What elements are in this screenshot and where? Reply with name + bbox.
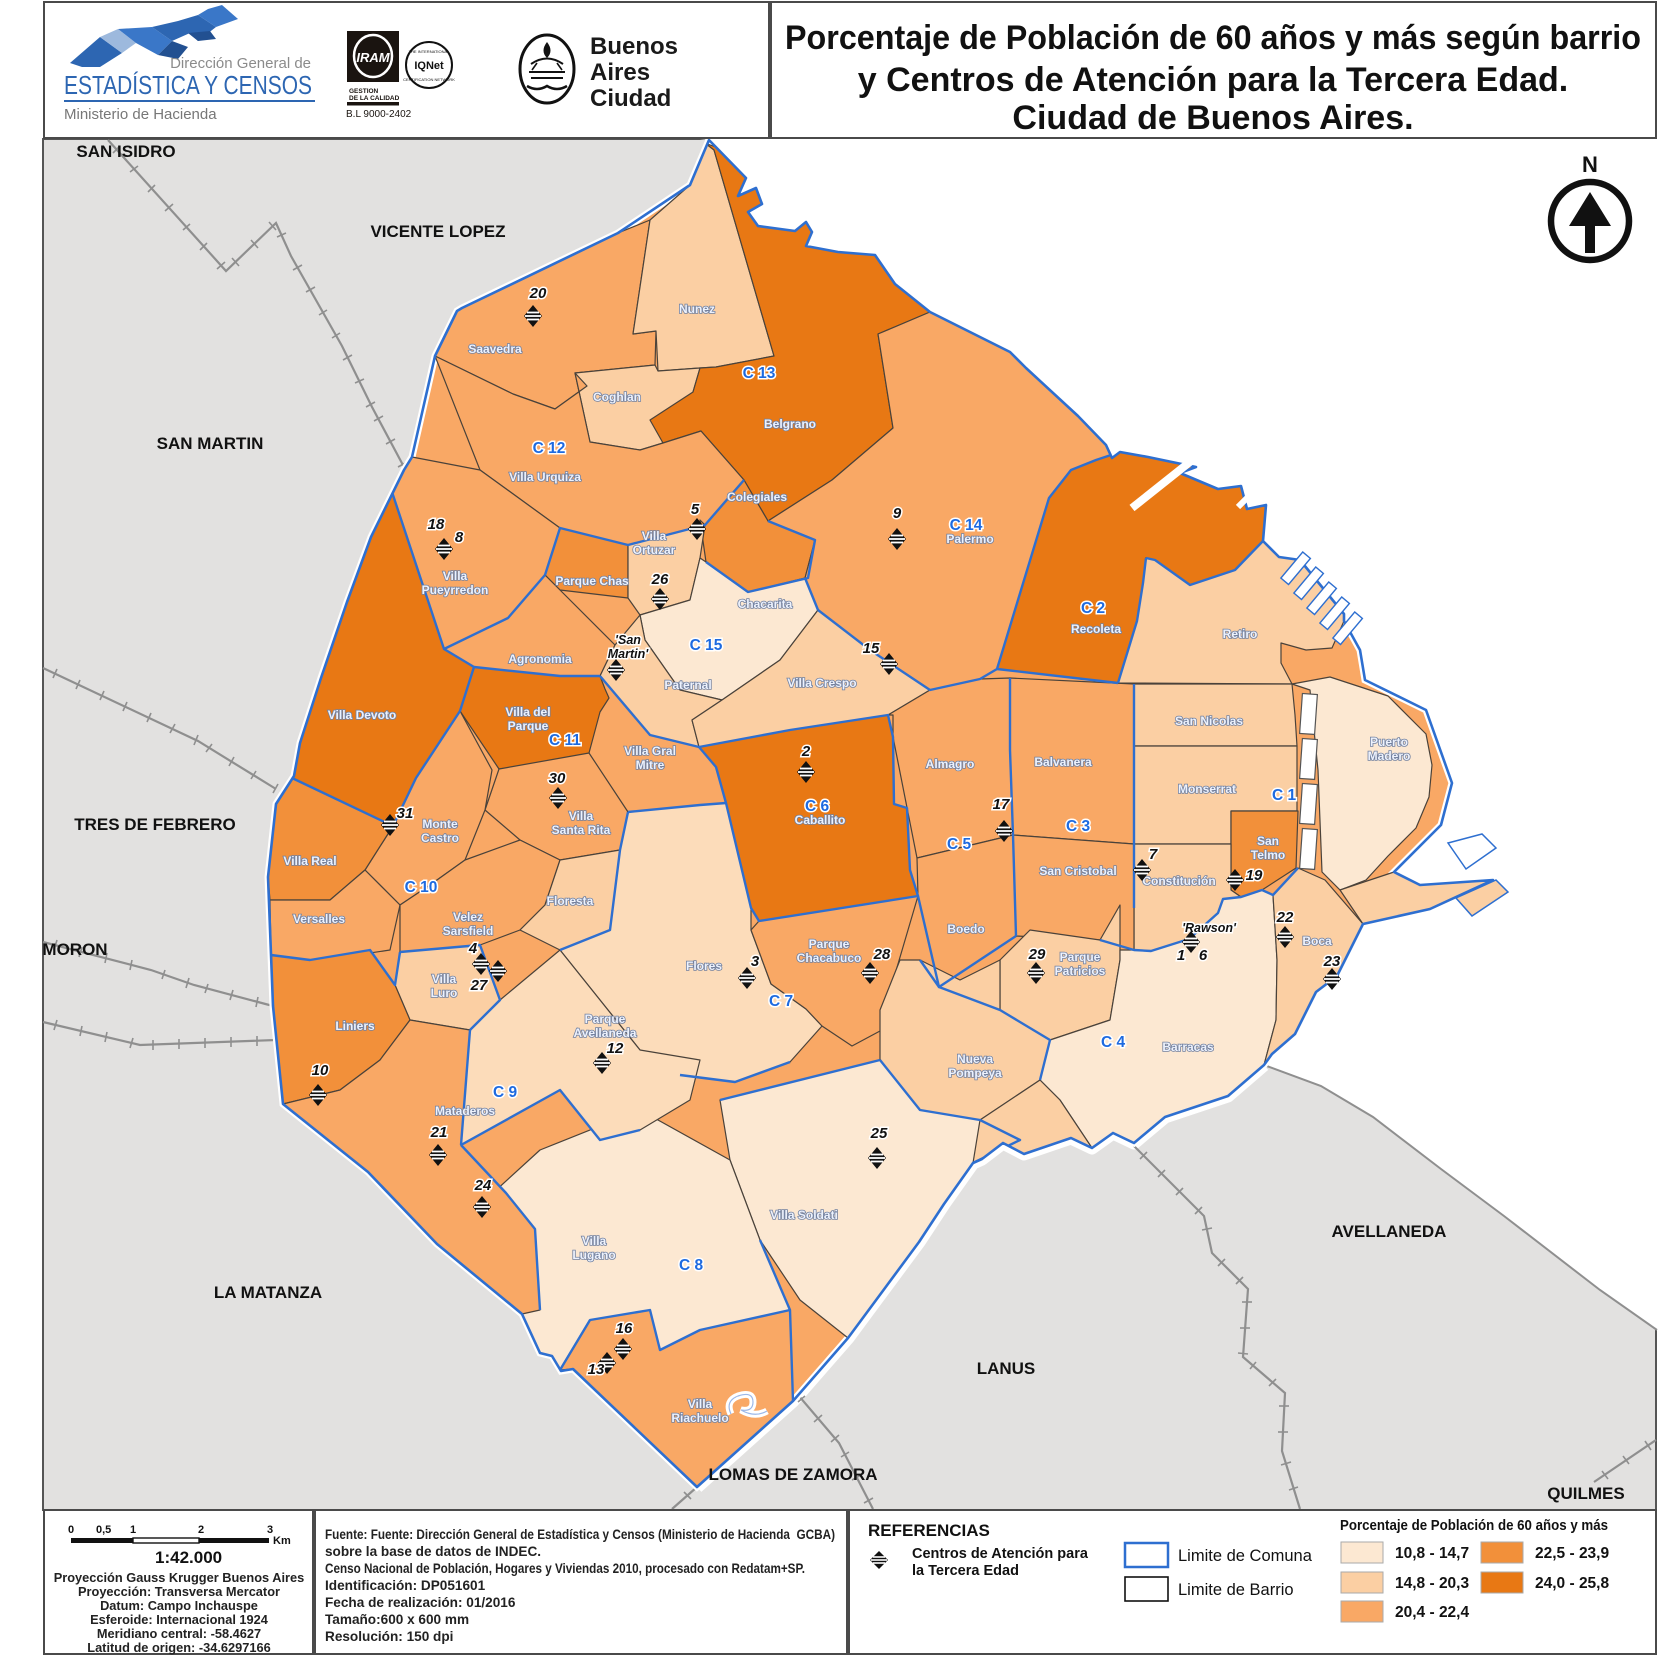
svg-text:Velez: Velez xyxy=(453,910,483,924)
svg-text:Villa Gral: Villa Gral xyxy=(624,744,676,758)
svg-text:C 10: C 10 xyxy=(405,879,438,896)
svg-text:San: San xyxy=(1257,834,1279,848)
svg-text:12: 12 xyxy=(607,1040,624,1057)
svg-text:LOMAS DE ZAMORA: LOMAS DE ZAMORA xyxy=(708,1465,877,1484)
svg-text:Castro: Castro xyxy=(421,831,459,845)
svg-text:Proyección: Transversa Mercato: Proyección: Transversa Mercator xyxy=(78,1584,280,1599)
svg-text:Flores: Flores xyxy=(686,959,722,973)
svg-text:Floresta: Floresta xyxy=(547,894,594,908)
svg-text:C 13: C 13 xyxy=(743,365,776,382)
svg-text:21: 21 xyxy=(430,1124,448,1141)
svg-text:Villa Real: Villa Real xyxy=(283,854,336,868)
svg-text:24: 24 xyxy=(474,1177,492,1194)
svg-text:Mataderos: Mataderos xyxy=(435,1104,495,1118)
svg-text:Villa: Villa xyxy=(569,809,594,823)
svg-text:Identificación: DP051601: Identificación: DP051601 xyxy=(325,1578,486,1593)
svg-text:Monte: Monte xyxy=(422,817,458,831)
svg-text:Palermo: Palermo xyxy=(946,532,993,546)
svg-text:Boedo: Boedo xyxy=(947,922,984,936)
svg-text:Nunez: Nunez xyxy=(679,302,715,316)
svg-text:C 2: C 2 xyxy=(1081,600,1105,617)
svg-text:Paternal: Paternal xyxy=(664,678,711,692)
svg-text:4: 4 xyxy=(468,940,478,957)
svg-text:Saavedra: Saavedra xyxy=(468,342,522,356)
svg-text:ESTADÍSTICA Y CENSOS: ESTADÍSTICA Y CENSOS xyxy=(64,70,312,100)
svg-text:22: 22 xyxy=(1276,909,1294,926)
svg-text:Datum: Campo Inchauspe: Datum: Campo Inchauspe xyxy=(100,1598,258,1613)
svg-text:Latitud de origen: -34.6297166: Latitud de origen: -34.6297166 xyxy=(87,1640,270,1655)
svg-text:Proyección Gauss Krugger Bueno: Proyección Gauss Krugger Buenos Aires xyxy=(54,1570,305,1585)
svg-text:CERTIFICATION NETWORK: CERTIFICATION NETWORK xyxy=(403,77,455,82)
svg-text:19: 19 xyxy=(1246,867,1263,884)
svg-text:C 7: C 7 xyxy=(769,993,793,1010)
svg-text:VICENTE LOPEZ: VICENTE LOPEZ xyxy=(370,222,505,241)
svg-text:Almagro: Almagro xyxy=(926,757,975,771)
svg-text:Parque: Parque xyxy=(809,937,850,951)
svg-text:Villa Urquiza: Villa Urquiza xyxy=(509,470,581,484)
svg-text:Mitre: Mitre xyxy=(636,758,665,772)
svg-text:C 5: C 5 xyxy=(947,836,972,853)
svg-text:GESTION: GESTION xyxy=(349,88,379,95)
svg-text:Porcentaje de Población de 60: Porcentaje de Población de 60 años y más… xyxy=(785,19,1641,57)
svg-text:Liniers: Liniers xyxy=(335,1019,375,1033)
svg-text:Villa Crespo: Villa Crespo xyxy=(787,676,856,690)
svg-text:22,5 - 23,9: 22,5 - 23,9 xyxy=(1535,1545,1609,1562)
svg-text:Pompeya: Pompeya xyxy=(948,1066,1002,1080)
svg-text:Belgrano: Belgrano xyxy=(764,417,816,431)
svg-text:B.L 9000-2402: B.L 9000-2402 xyxy=(346,109,412,120)
svg-text:17: 17 xyxy=(993,796,1010,813)
svg-text:Pueyrredon: Pueyrredon xyxy=(422,583,489,597)
svg-text:24,0 - 25,8: 24,0 - 25,8 xyxy=(1535,1575,1609,1592)
svg-text:Recoleta: Recoleta xyxy=(1071,622,1121,636)
svg-text:Villa del: Villa del xyxy=(505,705,550,719)
svg-text:C 3: C 3 xyxy=(1066,818,1091,835)
svg-text:Fuente: Fuente: Dirección Gene: Fuente: Fuente: Dirección General de Est… xyxy=(325,1527,835,1542)
svg-text:TRES DE FEBRERO: TRES DE FEBRERO xyxy=(74,815,236,834)
svg-text:C 4: C 4 xyxy=(1101,1034,1126,1051)
svg-text:Luro: Luro xyxy=(431,986,458,1000)
svg-text:Balvanera: Balvanera xyxy=(1034,755,1092,769)
svg-text:AVELLANEDA: AVELLANEDA xyxy=(1332,1222,1447,1241)
svg-text:Boca: Boca xyxy=(1302,934,1332,948)
svg-text:Villa Soldati: Villa Soldati xyxy=(770,1208,838,1222)
svg-text:29: 29 xyxy=(1028,946,1046,963)
svg-text:Fecha de realización: 01/2016: Fecha de realización: 01/2016 xyxy=(325,1595,516,1610)
svg-text:la Tercera Edad: la Tercera Edad xyxy=(912,1563,1019,1579)
svg-text:Agronomia: Agronomia xyxy=(508,652,572,666)
svg-text:Puerto: Puerto xyxy=(1370,735,1408,749)
svg-text:6: 6 xyxy=(1199,947,1208,964)
svg-text:7: 7 xyxy=(1149,846,1158,863)
svg-text:LANUS: LANUS xyxy=(977,1359,1036,1378)
svg-text:C 1: C 1 xyxy=(1272,787,1297,804)
svg-text:13: 13 xyxy=(588,1361,605,1378)
svg-text:Resolución: 150 dpi: Resolución: 150 dpi xyxy=(325,1629,453,1644)
svg-text:Meridiano central: -58.4627: Meridiano central: -58.4627 xyxy=(97,1626,261,1641)
svg-text:Chacarita: Chacarita xyxy=(738,597,793,611)
svg-text:C 15: C 15 xyxy=(690,637,723,654)
svg-text:C 9: C 9 xyxy=(493,1084,518,1101)
svg-text:Avellaneda: Avellaneda xyxy=(574,1026,637,1040)
svg-text:9: 9 xyxy=(893,505,902,522)
svg-text:Buenos: Buenos xyxy=(590,33,678,60)
svg-text:14,8 - 20,3: 14,8 - 20,3 xyxy=(1395,1575,1469,1592)
svg-text:Censo Nacional de Población, H: Censo Nacional de Población, Hogares y V… xyxy=(325,1561,805,1576)
svg-text:Ministerio de Hacienda: Ministerio de Hacienda xyxy=(64,106,217,123)
svg-text:Centros de Atención para: Centros de Atención para xyxy=(912,1546,1089,1562)
svg-text:Chacabuco: Chacabuco xyxy=(797,951,862,965)
svg-text:8: 8 xyxy=(455,529,464,546)
svg-text:Retiro: Retiro xyxy=(1223,627,1258,641)
svg-text:Monserrat: Monserrat xyxy=(1178,782,1236,796)
svg-text:Barracas: Barracas xyxy=(1162,1040,1214,1054)
svg-text:Coghlan: Coghlan xyxy=(593,390,641,404)
svg-text:MORON: MORON xyxy=(42,940,107,959)
svg-text:20: 20 xyxy=(529,285,547,302)
svg-text:Sarsfield: Sarsfield xyxy=(443,924,494,938)
svg-text:31: 31 xyxy=(397,805,414,822)
svg-text:Madero: Madero xyxy=(1368,749,1411,763)
svg-text:SAN ISIDRO: SAN ISIDRO xyxy=(76,142,175,161)
svg-text:C 14: C 14 xyxy=(950,517,983,534)
svg-text:Parque: Parque xyxy=(508,719,549,733)
svg-text:27: 27 xyxy=(470,977,488,994)
svg-text:Riachuelo: Riachuelo xyxy=(671,1411,728,1425)
svg-text:IQNet: IQNet xyxy=(414,60,444,72)
svg-text:San Cristobal: San Cristobal xyxy=(1039,864,1116,878)
svg-text:Villa: Villa xyxy=(642,529,667,543)
svg-text:Villa: Villa xyxy=(582,1234,607,1248)
svg-text:Limite de Barrio: Limite de Barrio xyxy=(1178,1581,1294,1599)
svg-text:C 11: C 11 xyxy=(549,732,581,749)
svg-text:Ciudad: Ciudad xyxy=(590,85,671,112)
svg-text:Ciudad de Buenos Aires.: Ciudad de Buenos Aires. xyxy=(1012,99,1413,137)
svg-text:30: 30 xyxy=(549,770,566,787)
svg-text:25: 25 xyxy=(870,1125,888,1142)
svg-text:Santa Rita: Santa Rita xyxy=(552,823,611,837)
svg-text:Parque: Parque xyxy=(1060,950,1101,964)
svg-text:1:42.000: 1:42.000 xyxy=(155,1548,222,1567)
svg-text:1: 1 xyxy=(1177,947,1185,964)
svg-text:N: N xyxy=(1582,152,1598,177)
svg-text:Parque: Parque xyxy=(585,1012,626,1026)
svg-text:Limite de Comuna: Limite de Comuna xyxy=(1178,1547,1313,1565)
svg-text:Aires: Aires xyxy=(590,59,650,86)
svg-text:0,5: 0,5 xyxy=(96,1524,111,1536)
svg-text:Telmo: Telmo xyxy=(1251,848,1285,862)
svg-text:y Centros de Atención para la: y Centros de Atención para la Tercera Ed… xyxy=(858,61,1568,99)
svg-text:Villa Devoto: Villa Devoto xyxy=(328,708,396,722)
svg-text:5: 5 xyxy=(691,501,700,518)
svg-text:San Nicolas: San Nicolas xyxy=(1175,714,1243,728)
svg-text:C 12: C 12 xyxy=(533,440,566,457)
svg-text:Villa: Villa xyxy=(443,569,468,583)
svg-text:1: 1 xyxy=(130,1524,136,1536)
svg-text:Martin': Martin' xyxy=(608,647,650,661)
svg-text:15: 15 xyxy=(863,640,880,657)
svg-text:Km: Km xyxy=(273,1535,291,1547)
svg-text:2: 2 xyxy=(198,1524,204,1536)
svg-text:Colegiales: Colegiales xyxy=(727,490,787,504)
svg-text:Patricios: Patricios xyxy=(1055,964,1106,978)
svg-text:QUILMES: QUILMES xyxy=(1547,1484,1624,1503)
svg-text:Versalles: Versalles xyxy=(293,912,345,926)
svg-text:10: 10 xyxy=(312,1062,329,1079)
svg-text:sobre la base de datos de INDE: sobre la base de datos de INDEC. xyxy=(325,1544,541,1559)
svg-text:SAN MARTIN: SAN MARTIN xyxy=(157,434,264,453)
svg-text:Parque Chas: Parque Chas xyxy=(555,574,629,588)
svg-text:Nueva: Nueva xyxy=(957,1052,993,1066)
svg-text:Porcentaje de Población de 60: Porcentaje de Población de 60 años y más xyxy=(1340,1517,1608,1534)
svg-text:THE INTERNATIONAL: THE INTERNATIONAL xyxy=(409,49,451,54)
svg-text:2: 2 xyxy=(801,743,811,760)
svg-text:10,8 - 14,7: 10,8 - 14,7 xyxy=(1395,1545,1469,1562)
svg-text:C 6: C 6 xyxy=(805,798,830,815)
svg-text:3: 3 xyxy=(751,953,760,970)
svg-text:'San: 'San xyxy=(615,633,641,647)
svg-text:DE LA CALIDAD: DE LA CALIDAD xyxy=(349,95,400,102)
svg-text:Tamaño:600 x 600 mm: Tamaño:600 x 600 mm xyxy=(325,1612,469,1627)
svg-text:REFERENCIAS: REFERENCIAS xyxy=(868,1521,990,1540)
svg-text:20,4 - 22,4: 20,4 - 22,4 xyxy=(1395,1604,1469,1621)
svg-text:26: 26 xyxy=(651,571,669,588)
svg-text:Caballito: Caballito xyxy=(795,813,846,827)
svg-text:Lugano: Lugano xyxy=(572,1248,615,1262)
svg-text:28: 28 xyxy=(873,946,891,963)
svg-text:C 8: C 8 xyxy=(679,1257,704,1274)
svg-text:Constitución: Constitución xyxy=(1142,874,1215,888)
svg-text:16: 16 xyxy=(616,1320,633,1337)
svg-text:Ortuzar: Ortuzar xyxy=(633,543,676,557)
svg-text:23: 23 xyxy=(1323,953,1341,970)
svg-text:Esferoide: Internacional 1924: Esferoide: Internacional 1924 xyxy=(90,1612,269,1627)
svg-text:IRAM: IRAM xyxy=(356,50,390,65)
svg-text:Villa: Villa xyxy=(688,1397,713,1411)
svg-text:0: 0 xyxy=(68,1524,74,1536)
svg-text:18: 18 xyxy=(428,516,445,533)
svg-text:LA MATANZA: LA MATANZA xyxy=(214,1283,322,1302)
svg-text:Villa: Villa xyxy=(432,972,457,986)
